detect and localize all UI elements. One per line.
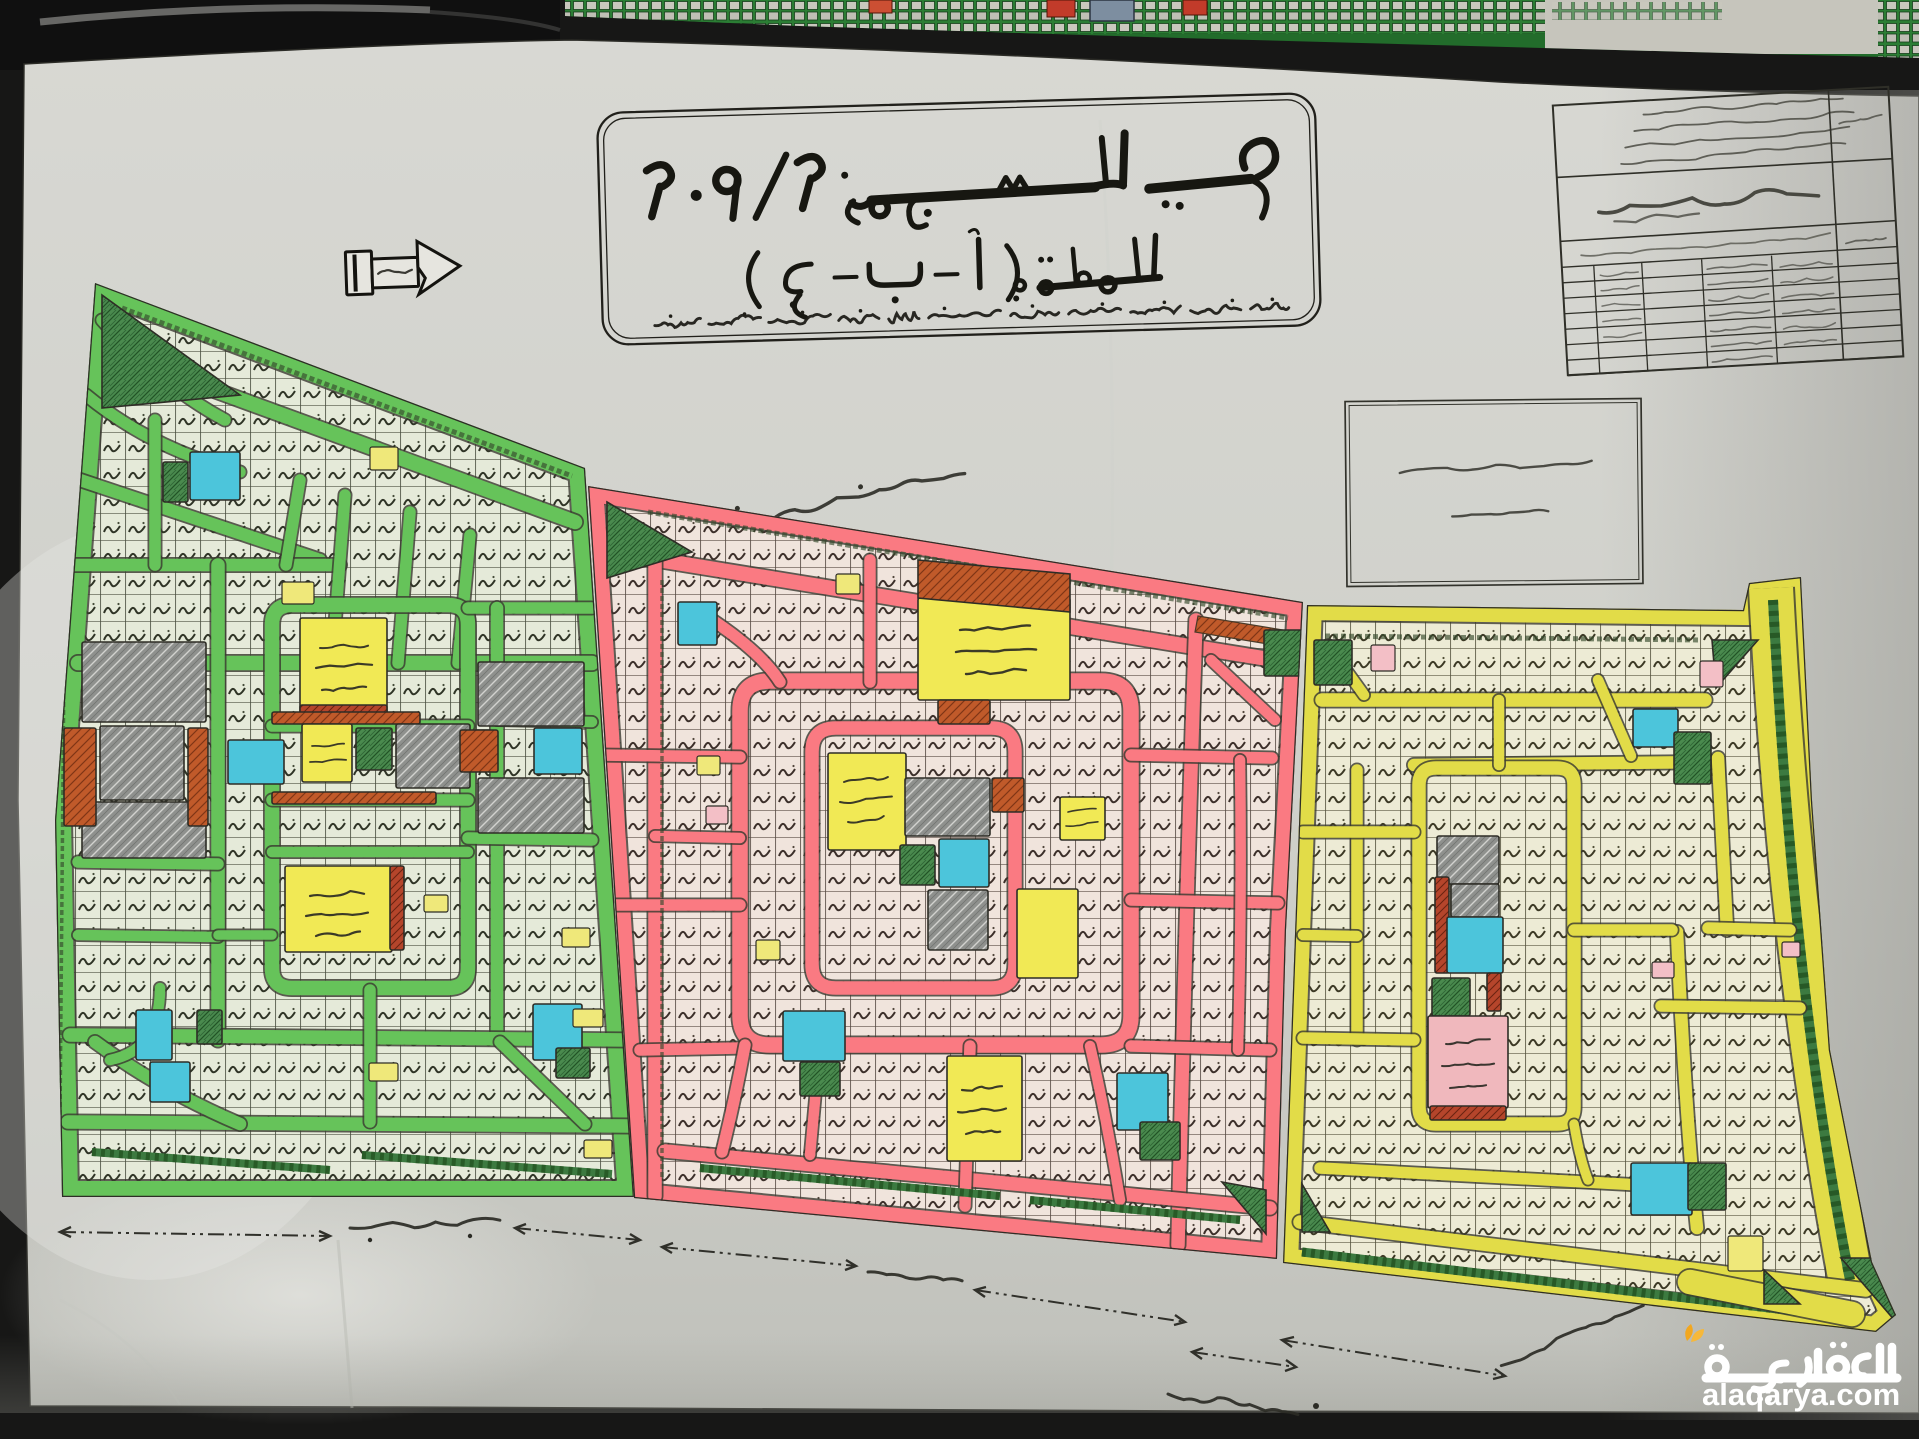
- svg-text:alaqarya.com: alaqarya.com: [1702, 1377, 1900, 1412]
